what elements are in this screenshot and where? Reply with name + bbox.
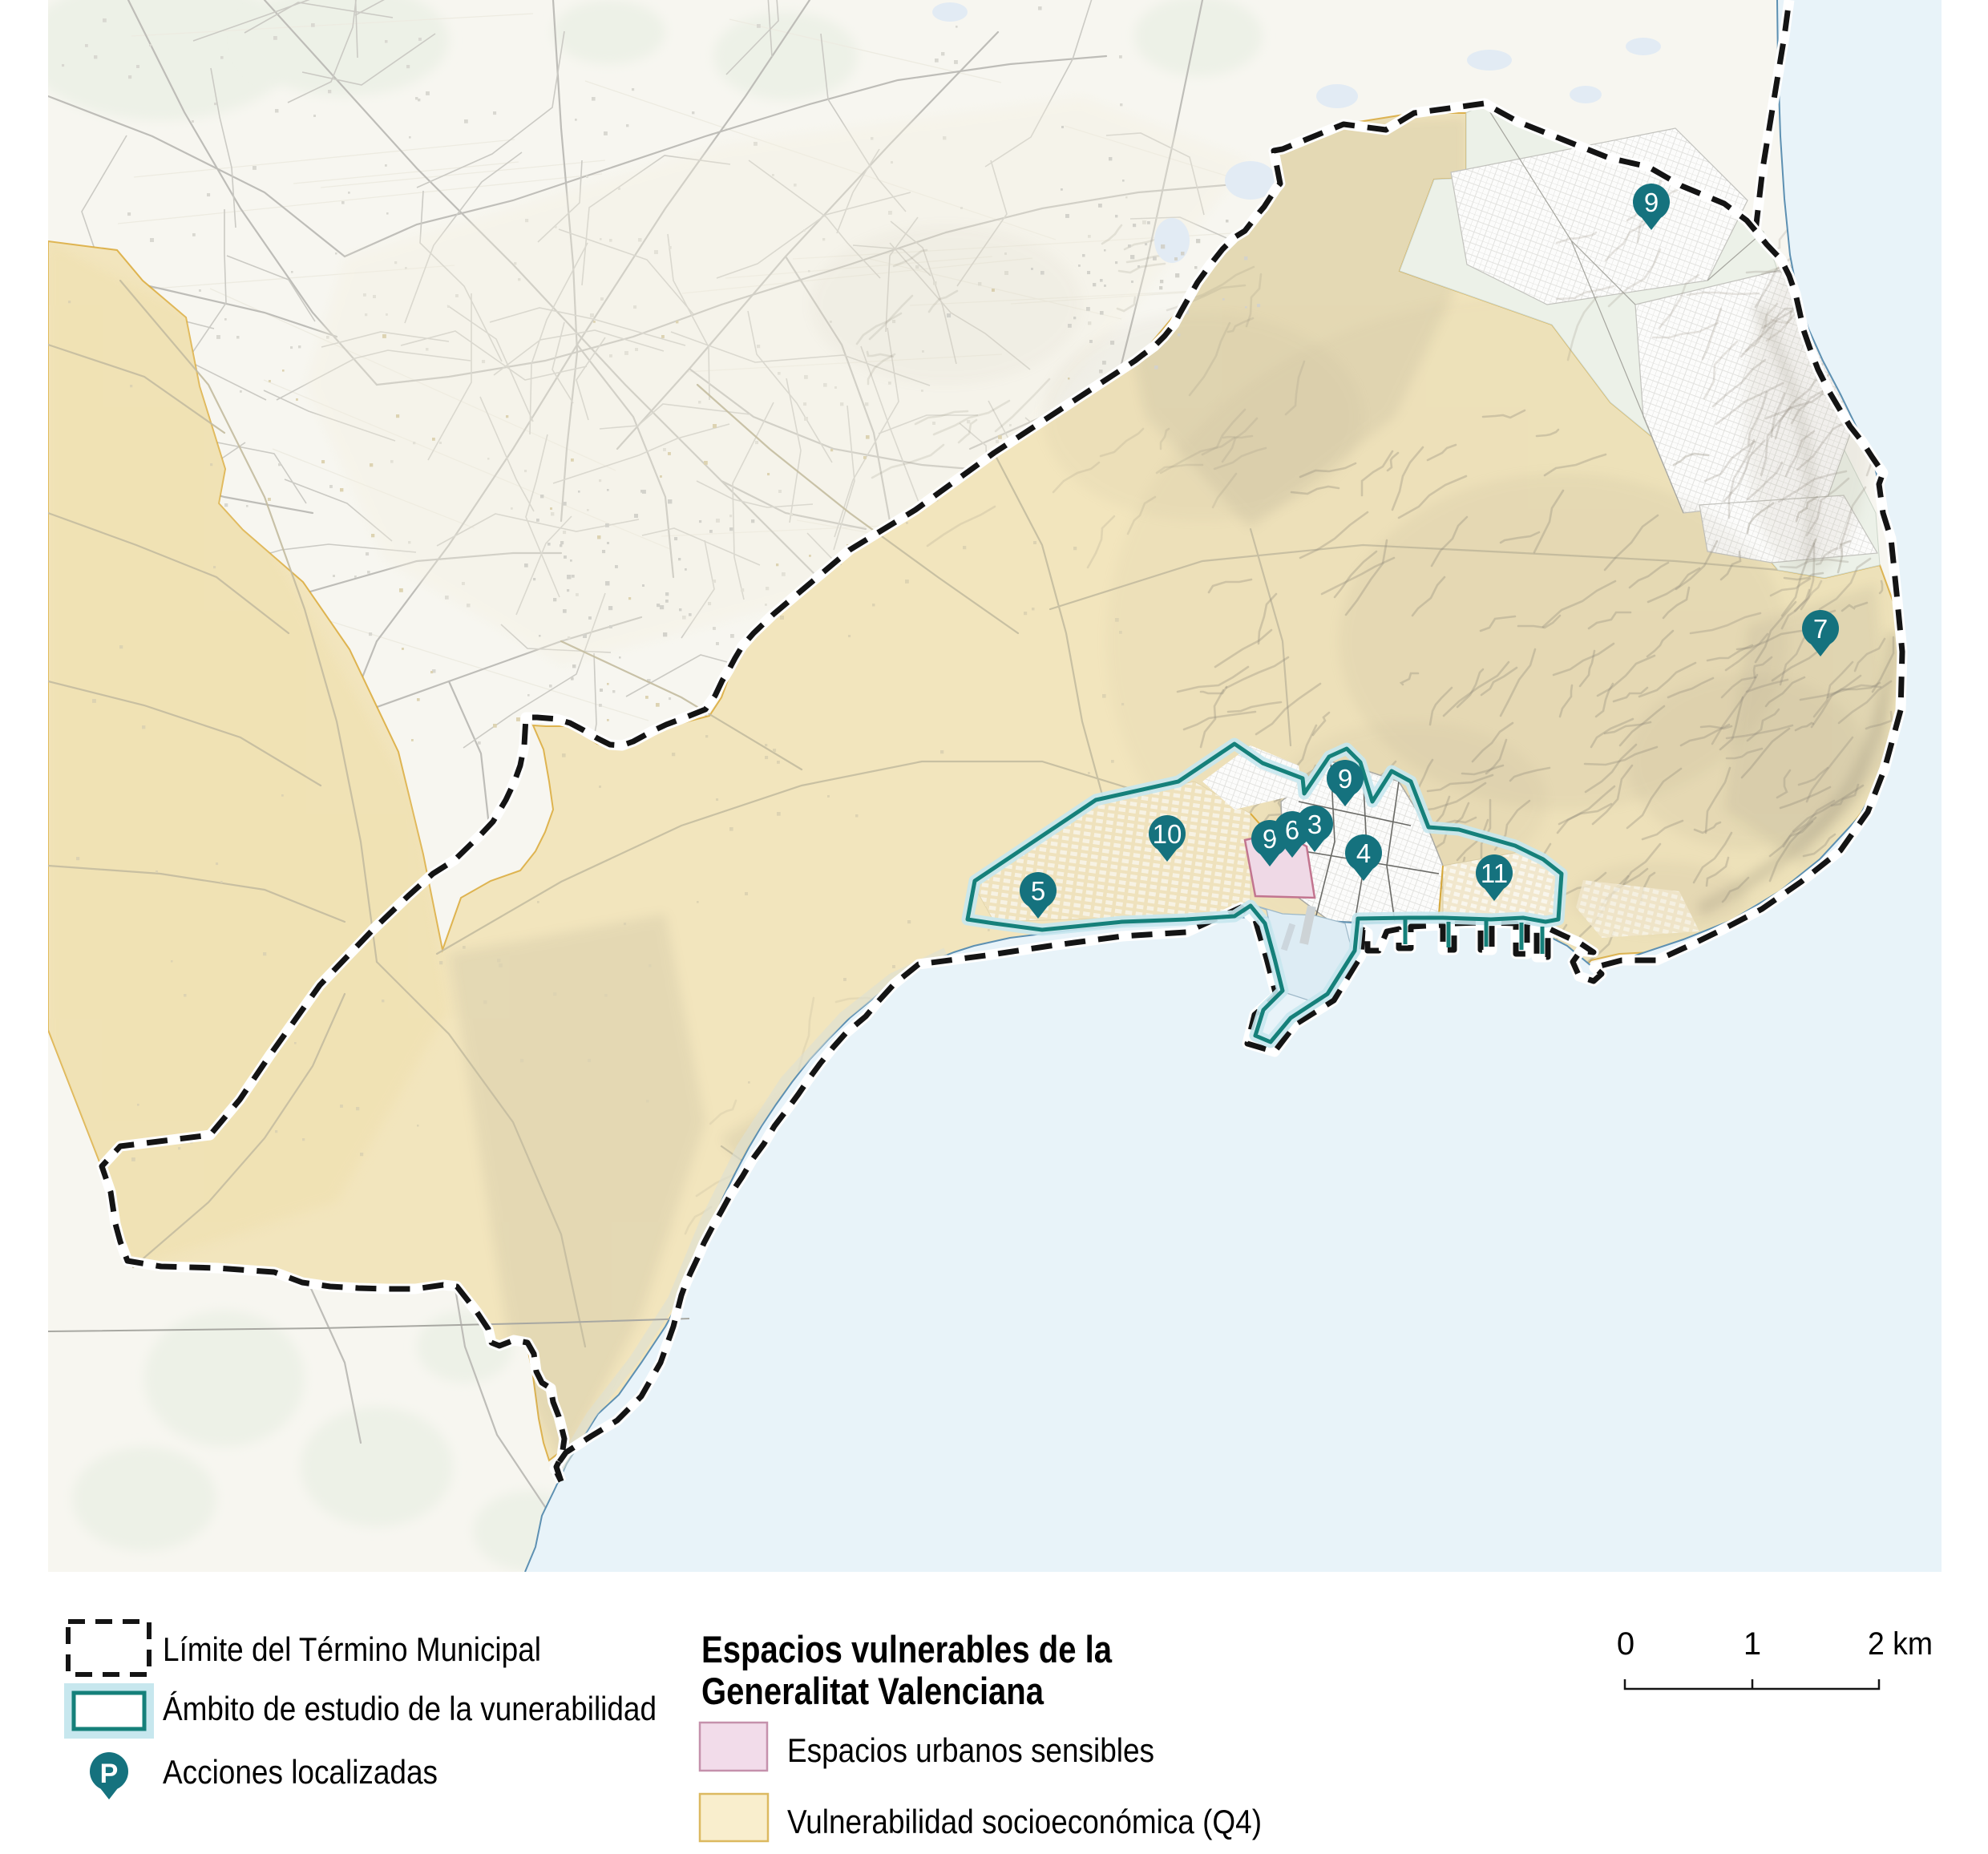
svg-text:Generalitat Valenciana: Generalitat Valenciana [701, 1670, 1045, 1712]
svg-text:Espacios vulnerables de la: Espacios vulnerables de la [701, 1628, 1113, 1670]
svg-text:3: 3 [1307, 810, 1322, 839]
svg-text:Límite del Término Municipal: Límite del Término Municipal [163, 1630, 541, 1668]
svg-text:1: 1 [1744, 1626, 1761, 1662]
svg-text:0: 0 [1617, 1626, 1634, 1662]
svg-text:10: 10 [1153, 819, 1182, 849]
svg-text:9: 9 [1644, 188, 1659, 217]
svg-text:11: 11 [1481, 858, 1508, 888]
svg-text:5: 5 [1031, 876, 1045, 906]
svg-text:P: P [100, 1759, 119, 1789]
svg-text:2 km: 2 km [1868, 1626, 1933, 1662]
svg-text:Vulnerabilidad socioeconómica: Vulnerabilidad socioeconómica (Q4) [787, 1803, 1262, 1840]
svg-text:4: 4 [1356, 838, 1371, 868]
svg-text:Acciones localizadas: Acciones localizadas [163, 1753, 438, 1791]
svg-text:7: 7 [1813, 614, 1828, 644]
svg-text:Espacios urbanos sensibles: Espacios urbanos sensibles [787, 1731, 1154, 1769]
svg-text:Ámbito de estudio de la vunera: Ámbito de estudio de la vunerabilidad [163, 1690, 657, 1727]
svg-text:9: 9 [1338, 764, 1352, 794]
